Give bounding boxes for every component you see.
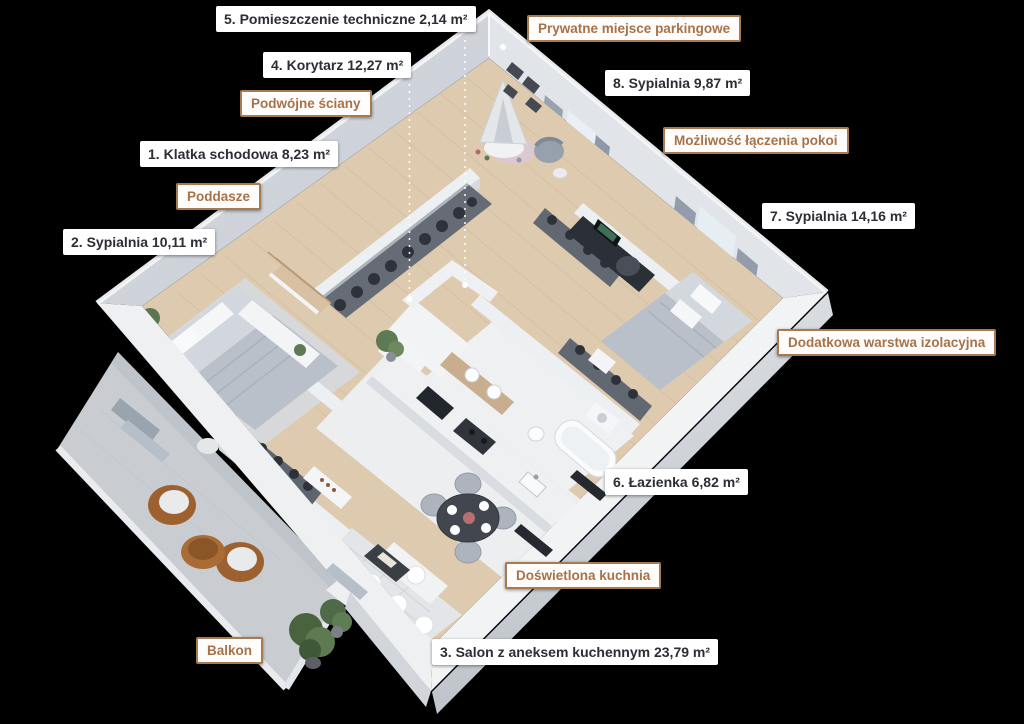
pouf (553, 168, 567, 178)
balcony-armchair (148, 485, 196, 525)
feature-tag-parking: Prywatne miejsce parkingowe (527, 15, 741, 42)
sink-basin (465, 368, 479, 382)
sink-basin (487, 385, 501, 399)
room-label-7-bedroom: 7. Sypialnia 14,16 m² (762, 203, 915, 229)
room-label-5-technical-room: 5. Pomieszczenie techniczne 2,14 m² (216, 6, 476, 32)
room-label-2-bedroom: 2. Sypialnia 10,11 m² (63, 229, 215, 255)
desk-chair (616, 256, 640, 276)
balcony-table (181, 535, 225, 569)
armchair (534, 139, 564, 163)
room-label-4-corridor: 4. Korytarz 12,27 m² (263, 52, 411, 78)
toilet (528, 427, 544, 441)
feature-tag-insulation: Dodatkowa warstwa izolacyjna (777, 329, 996, 356)
room-label-1-staircase: 1. Klatka schodowa 8,23 m² (140, 141, 338, 167)
room-label-6-bathroom: 6. Łazienka 6,82 m² (605, 469, 748, 495)
centerpiece (463, 512, 475, 524)
room-label-8-bedroom: 8. Sypialnia 9,87 m² (605, 70, 750, 96)
room-label-3-living-room: 3. Salon z aneksem kuchennym 23,79 m² (432, 639, 718, 665)
floor-plan-scene: 1. Klatka schodowa 8,23 m² 2. Sypialnia … (0, 0, 1024, 724)
floor-plan-render (0, 0, 1024, 724)
feature-tag-kitchen-light: Doświetlona kuchnia (505, 562, 661, 589)
feature-tag-room-merge: Możliwość łączenia pokoi (663, 127, 849, 154)
feature-tag-balcony: Balkon (196, 637, 263, 664)
feature-tag-attic: Poddasze (176, 183, 261, 210)
feature-tag-double-walls: Podwójne ściany (240, 90, 372, 117)
plant (294, 344, 306, 356)
